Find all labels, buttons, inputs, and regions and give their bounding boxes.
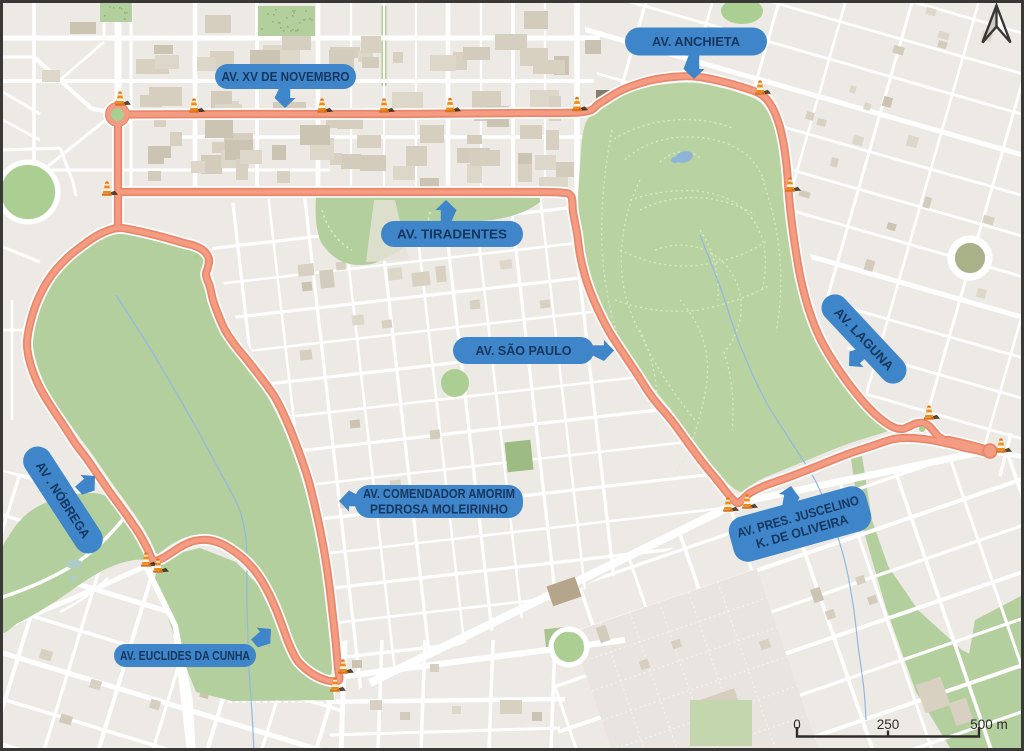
svg-text:AV. COMENDADOR AMORIM: AV. COMENDADOR AMORIM — [363, 487, 515, 501]
svg-text:500 m: 500 m — [970, 717, 1008, 732]
svg-text:AV. XV DE NOVEMBRO: AV. XV DE NOVEMBRO — [222, 69, 350, 84]
svg-text:AV. ANCHIETA: AV. ANCHIETA — [652, 34, 741, 49]
svg-text:AV. SÃO PAULO: AV. SÃO PAULO — [476, 343, 572, 358]
svg-text:AV. TIRADENTES: AV. TIRADENTES — [397, 227, 507, 242]
svg-text:PEDROSA MOLEIRINHO: PEDROSA MOLEIRINHO — [370, 503, 508, 517]
svg-text:250: 250 — [877, 717, 900, 732]
svg-text:AV. EUCLIDES DA CUNHA: AV. EUCLIDES DA CUNHA — [120, 649, 250, 663]
svg-text:0: 0 — [793, 717, 801, 732]
